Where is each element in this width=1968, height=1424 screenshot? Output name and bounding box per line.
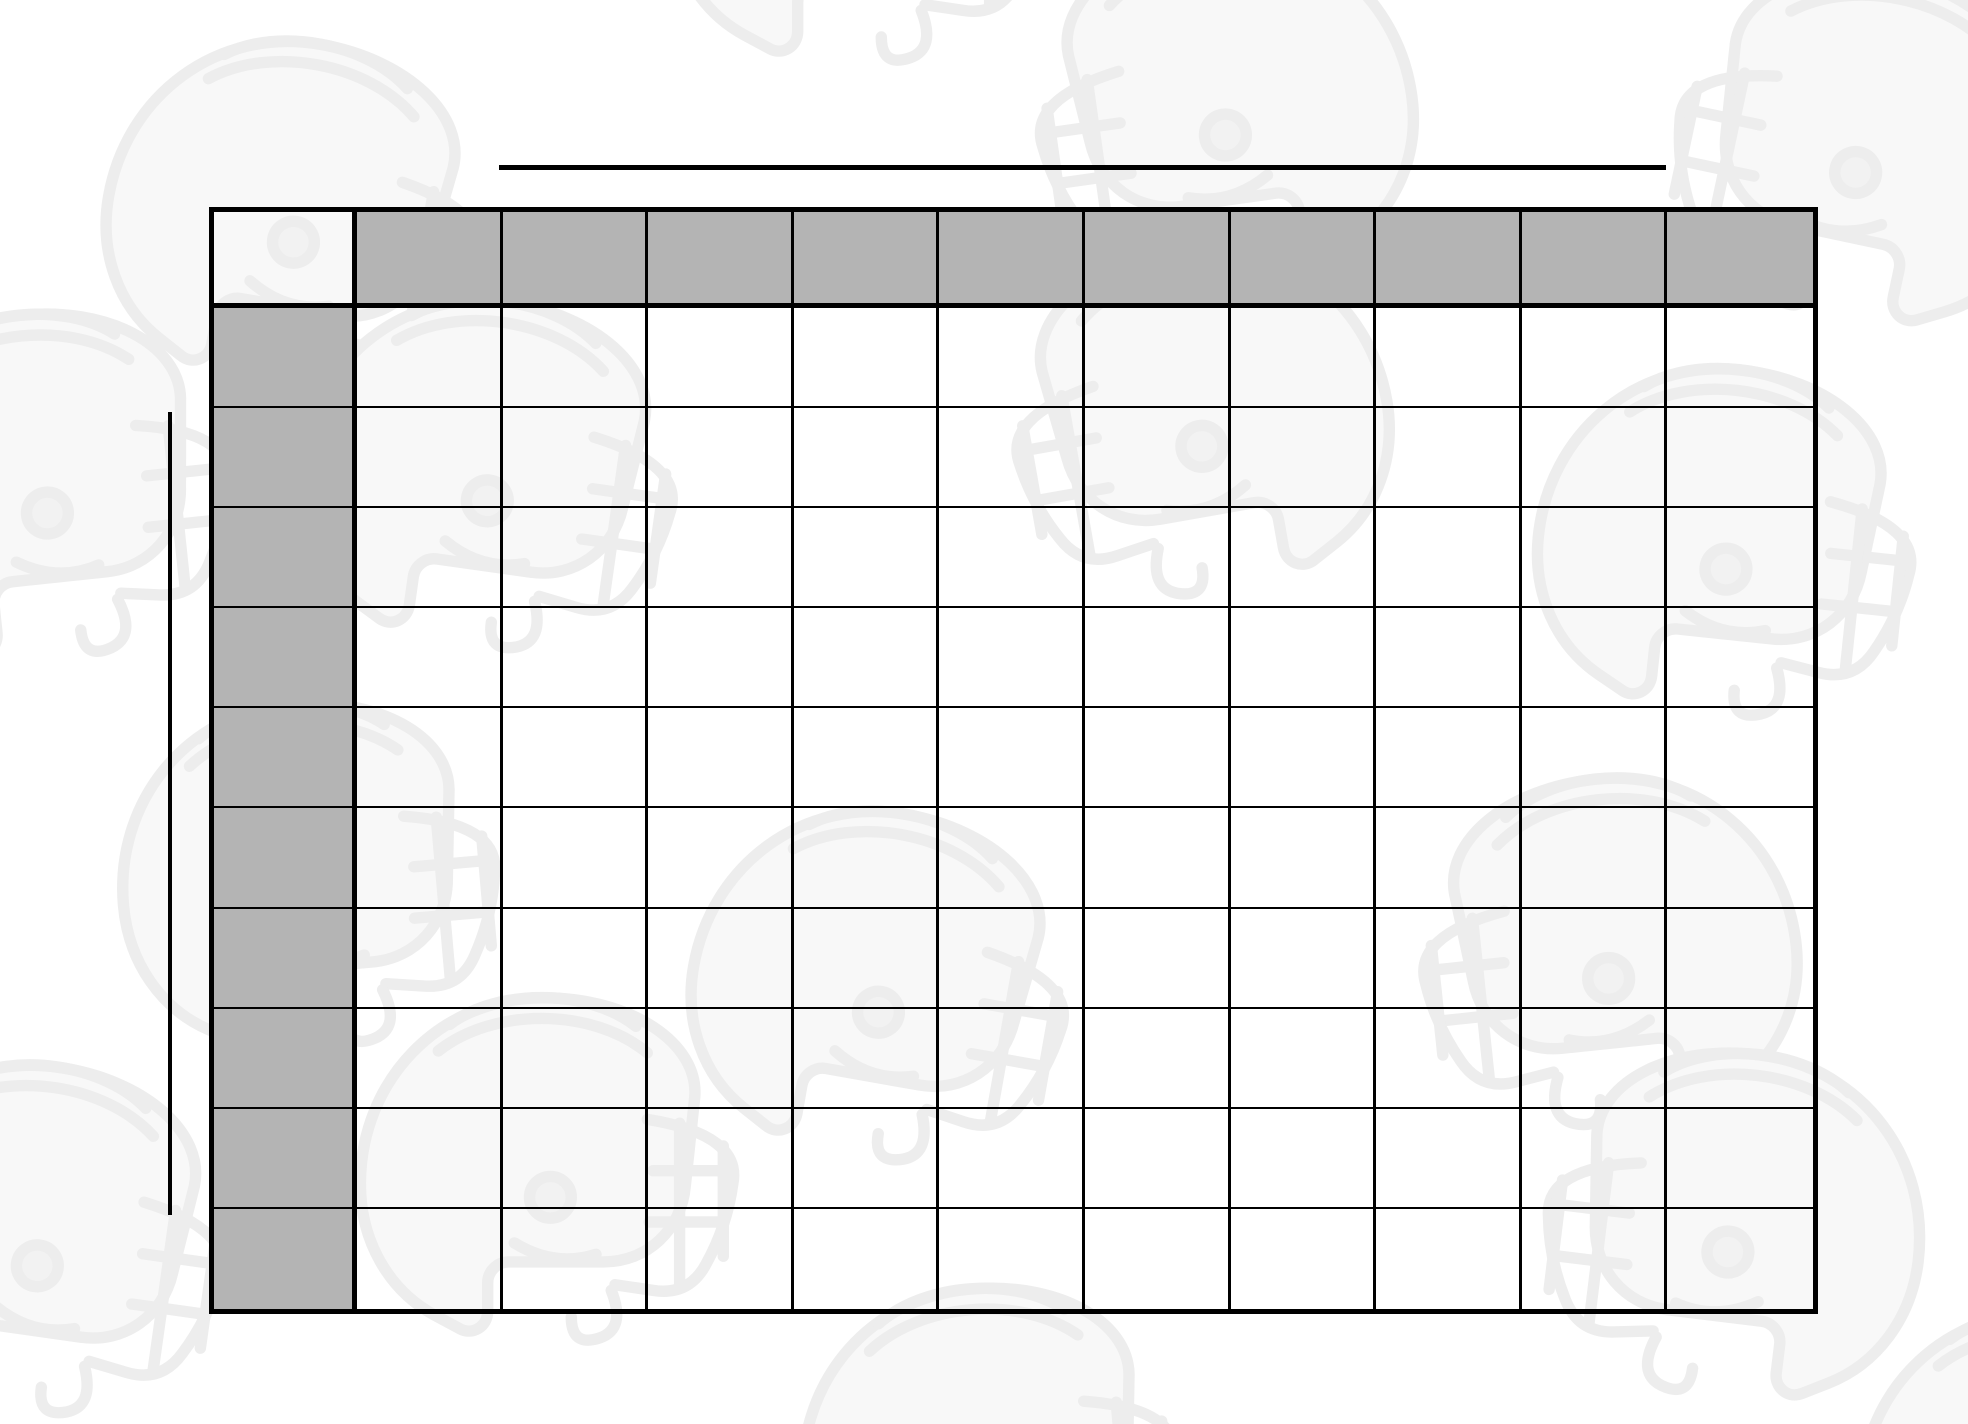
square-cell[interactable]	[1085, 408, 1231, 508]
square-cell[interactable]	[1667, 909, 1813, 1009]
square-cell[interactable]	[1231, 1209, 1377, 1309]
square-cell[interactable]	[939, 1209, 1085, 1309]
square-cell[interactable]	[503, 1109, 649, 1209]
square-cell[interactable]	[648, 408, 794, 508]
column-header-cell[interactable]	[1667, 212, 1813, 308]
square-cell[interactable]	[1376, 408, 1522, 508]
square-cell[interactable]	[1522, 1209, 1668, 1309]
square-cell[interactable]	[1231, 308, 1377, 408]
square-cell[interactable]	[1667, 708, 1813, 808]
square-cell[interactable]	[939, 1009, 1085, 1109]
square-cell[interactable]	[1667, 608, 1813, 708]
square-cell[interactable]	[503, 708, 649, 808]
column-header-cell[interactable]	[503, 212, 649, 308]
square-cell[interactable]	[794, 1209, 940, 1309]
square-cell[interactable]	[1522, 408, 1668, 508]
column-header-cell[interactable]	[1085, 212, 1231, 308]
square-cell[interactable]	[1085, 1209, 1231, 1309]
column-header-cell[interactable]	[1522, 212, 1668, 308]
square-cell[interactable]	[794, 608, 940, 708]
square-cell[interactable]	[1376, 608, 1522, 708]
column-header-cell[interactable]	[357, 212, 503, 308]
title-write-line[interactable]	[499, 165, 1666, 170]
square-cell[interactable]	[939, 408, 1085, 508]
square-cell[interactable]	[648, 909, 794, 1009]
square-cell[interactable]	[1231, 1109, 1377, 1209]
square-cell[interactable]	[648, 1209, 794, 1309]
row-header-cell[interactable]	[214, 708, 357, 808]
square-cell[interactable]	[503, 508, 649, 608]
square-cell[interactable]	[794, 808, 940, 908]
square-cell[interactable]	[1376, 1009, 1522, 1109]
square-cell[interactable]	[357, 708, 503, 808]
square-cell[interactable]	[1376, 508, 1522, 608]
row-header-cell[interactable]	[214, 1109, 357, 1209]
row-header-cell[interactable]	[214, 909, 357, 1009]
square-cell[interactable]	[1231, 408, 1377, 508]
square-cell[interactable]	[1231, 508, 1377, 608]
square-cell[interactable]	[939, 1109, 1085, 1209]
square-cell[interactable]	[939, 308, 1085, 408]
square-cell[interactable]	[1376, 1209, 1522, 1309]
square-cell[interactable]	[939, 909, 1085, 1009]
corner-cell	[214, 212, 357, 308]
column-header-cell[interactable]	[1376, 212, 1522, 308]
row-header-cell[interactable]	[214, 408, 357, 508]
square-cell[interactable]	[939, 508, 1085, 608]
square-cell[interactable]	[1376, 1109, 1522, 1209]
square-cell[interactable]	[357, 1209, 503, 1309]
column-header-cell[interactable]	[648, 212, 794, 308]
left-team-write-line[interactable]	[168, 412, 172, 1215]
column-header-cell[interactable]	[794, 212, 940, 308]
square-cell[interactable]	[1522, 308, 1668, 408]
square-cell[interactable]	[648, 1109, 794, 1209]
square-cell[interactable]	[1667, 1109, 1813, 1209]
square-cell[interactable]	[1085, 708, 1231, 808]
squares-grid	[209, 207, 1818, 1314]
square-cell[interactable]	[1522, 808, 1668, 908]
square-cell[interactable]	[1085, 1109, 1231, 1209]
square-cell[interactable]	[1667, 508, 1813, 608]
square-cell[interactable]	[1667, 308, 1813, 408]
column-header-cell[interactable]	[939, 212, 1085, 308]
square-cell[interactable]	[794, 909, 940, 1009]
square-cell[interactable]	[1231, 608, 1377, 708]
square-cell[interactable]	[357, 408, 503, 508]
square-cell[interactable]	[1522, 708, 1668, 808]
square-cell[interactable]	[794, 308, 940, 408]
square-cell[interactable]	[503, 909, 649, 1009]
square-cell[interactable]	[1522, 1109, 1668, 1209]
square-cell[interactable]	[1085, 909, 1231, 1009]
square-cell[interactable]	[939, 808, 1085, 908]
row-header-cell[interactable]	[214, 1209, 357, 1309]
square-cell[interactable]	[1376, 808, 1522, 908]
square-cell[interactable]	[794, 508, 940, 608]
square-cell[interactable]	[1522, 1009, 1668, 1109]
square-cell[interactable]	[1231, 708, 1377, 808]
square-cell[interactable]	[648, 1009, 794, 1109]
column-header-cell[interactable]	[1231, 212, 1377, 308]
football-helmet-icon	[1860, 1313, 1968, 1424]
square-cell[interactable]	[1376, 308, 1522, 408]
square-cell[interactable]	[794, 1009, 940, 1109]
square-cell[interactable]	[503, 1209, 649, 1309]
square-cell[interactable]	[357, 608, 503, 708]
square-cell[interactable]	[794, 1109, 940, 1209]
square-cell[interactable]	[939, 608, 1085, 708]
square-cell[interactable]	[503, 808, 649, 908]
square-cell[interactable]	[1376, 909, 1522, 1009]
square-cell[interactable]	[1522, 909, 1668, 1009]
square-cell[interactable]	[503, 408, 649, 508]
square-cell[interactable]	[1376, 708, 1522, 808]
football-helmet-icon	[0, 295, 245, 675]
square-cell[interactable]	[648, 508, 794, 608]
square-cell[interactable]	[794, 708, 940, 808]
square-cell[interactable]	[357, 1109, 503, 1209]
square-cell[interactable]	[1085, 808, 1231, 908]
square-cell[interactable]	[648, 308, 794, 408]
square-cell[interactable]	[1522, 608, 1668, 708]
square-cell[interactable]	[503, 308, 649, 408]
square-cell[interactable]	[1667, 1209, 1813, 1309]
square-cell[interactable]	[1085, 308, 1231, 408]
square-cell[interactable]	[1667, 408, 1813, 508]
square-cell[interactable]	[1667, 1009, 1813, 1109]
square-cell[interactable]	[1085, 508, 1231, 608]
square-cell[interactable]	[794, 408, 940, 508]
square-cell[interactable]	[1231, 1009, 1377, 1109]
square-cell[interactable]	[1522, 508, 1668, 608]
square-cell[interactable]	[503, 1009, 649, 1109]
square-cell[interactable]	[648, 808, 794, 908]
football-squares-sheet	[0, 0, 1968, 1424]
row-header-cell[interactable]	[214, 1009, 357, 1109]
square-cell[interactable]	[503, 608, 649, 708]
square-cell[interactable]	[1667, 808, 1813, 908]
square-cell[interactable]	[1231, 909, 1377, 1009]
square-cell[interactable]	[648, 708, 794, 808]
row-header-cell[interactable]	[214, 808, 357, 908]
football-helmet-icon	[670, 0, 1043, 60]
row-header-cell[interactable]	[214, 508, 357, 608]
square-cell[interactable]	[939, 708, 1085, 808]
row-header-cell[interactable]	[214, 608, 357, 708]
square-cell[interactable]	[357, 909, 503, 1009]
square-cell[interactable]	[648, 608, 794, 708]
square-cell[interactable]	[1085, 1009, 1231, 1109]
square-cell[interactable]	[357, 508, 503, 608]
square-cell[interactable]	[1085, 608, 1231, 708]
square-cell[interactable]	[357, 808, 503, 908]
square-cell[interactable]	[1231, 808, 1377, 908]
square-cell[interactable]	[357, 308, 503, 408]
square-cell[interactable]	[357, 1009, 503, 1109]
row-header-cell[interactable]	[214, 308, 357, 408]
